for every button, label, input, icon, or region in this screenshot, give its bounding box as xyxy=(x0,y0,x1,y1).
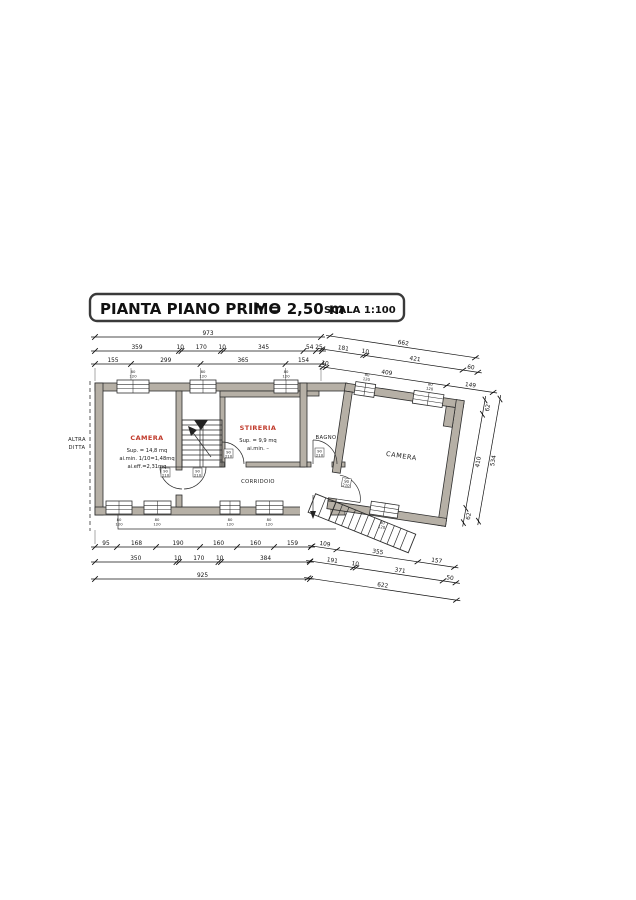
room-camera-1-ai-min: ai.min. 1/10=1,48mq xyxy=(119,456,174,462)
dim-label: 410 xyxy=(475,456,483,468)
svg-text:120: 120 xyxy=(129,374,137,379)
room-stireria: STIRERIA Sup. = 9,9 mq ai.min. – xyxy=(239,424,276,452)
window-symbol xyxy=(220,501,240,514)
dim-label: 155 xyxy=(107,358,118,364)
internal-staircase xyxy=(182,420,222,467)
dim-chain-bottom-total: 925 xyxy=(91,573,314,582)
window-symbol xyxy=(106,501,132,514)
door-swing: 90 210 xyxy=(336,475,363,502)
dim-label: 365 xyxy=(237,358,248,364)
stair-arrow-head xyxy=(188,426,197,436)
room-camera-1-ai-eff: ai.eff.=2,31mq xyxy=(128,464,167,470)
dim-label: 62 xyxy=(466,512,473,521)
dim-label: 62 xyxy=(485,404,492,413)
room-label-stireria: STIRERIA xyxy=(240,424,277,432)
room-label-bagno: BAGNO xyxy=(316,435,337,441)
dim-label: 60 xyxy=(467,364,475,371)
dim-label: 160 xyxy=(250,541,261,547)
dim-chain-bottom-row1: 95168190160160159 xyxy=(91,541,315,550)
svg-text:120: 120 xyxy=(153,522,161,527)
dim-label: 299 xyxy=(160,358,171,364)
dim-label: 534 xyxy=(490,455,498,467)
svg-text:210: 210 xyxy=(342,482,350,488)
window-symbol xyxy=(412,390,444,407)
room-label-corridoio: CORRIDOIO xyxy=(241,479,275,485)
dim-label: 973 xyxy=(202,331,213,337)
floor-plan-drawing: PIANTA PIANO PRIMO h = 2,50 m SCALA 1:10… xyxy=(0,0,636,900)
dim-label: 54 xyxy=(306,345,314,351)
property-line: ALTRA DITTA xyxy=(68,381,90,531)
svg-text:120: 120 xyxy=(199,374,207,379)
dim-chain-top-slope-total: 662 xyxy=(326,329,481,361)
dim-label: 10 xyxy=(351,561,359,568)
room-stireria-ai-min: ai.min. – xyxy=(247,446,269,452)
door-swing: 90 210 xyxy=(184,467,206,489)
dim-chain-top-row3: 155299365154 xyxy=(91,358,326,367)
dim-label: 384 xyxy=(260,556,271,562)
room-camera-1: CAMERA Sup. = 14,8 mq ai.min. 1/10=1,48m… xyxy=(119,434,174,470)
floor-plan-page: PIANTA PIANO PRIMO h = 2,50 m SCALA 1:10… xyxy=(0,0,636,900)
altra-ditta-label: DITTA xyxy=(69,445,86,451)
svg-text:120: 120 xyxy=(265,522,273,527)
dim-label: 10 xyxy=(321,361,329,368)
door-swing: 90 210 xyxy=(313,440,337,464)
dim-chain-top-row2: 35910170103455425 xyxy=(91,345,326,354)
window-symbol xyxy=(256,501,283,514)
svg-text:210: 210 xyxy=(162,473,170,478)
window-symbol xyxy=(117,380,149,393)
dim-chain-bottom-slope-total: 622 xyxy=(304,571,462,603)
dim-chain-top-slope-row2: 1811042160 xyxy=(318,342,483,375)
room-stireria-area: Sup. = 9,9 mq xyxy=(239,438,276,444)
svg-text:120: 120 xyxy=(226,522,234,527)
svg-text:120: 120 xyxy=(362,376,370,382)
dim-chain-bottom-slope-row1: 109355157 xyxy=(308,539,460,570)
dim-label: 170 xyxy=(193,556,204,562)
svg-text:210: 210 xyxy=(194,473,202,478)
dim-label: 95 xyxy=(102,541,110,547)
window-symbol xyxy=(274,380,298,393)
dim-label: 154 xyxy=(298,358,309,364)
svg-text:120: 120 xyxy=(115,522,123,527)
window-symbol xyxy=(354,382,376,398)
title-box: PIANTA PIANO PRIMO h = 2,50 m SCALA 1:10… xyxy=(90,294,404,321)
dim-chain-top-total: 973 xyxy=(91,331,325,340)
dim-label: 350 xyxy=(130,556,141,562)
altra-ditta-label: ALTRA xyxy=(68,437,86,443)
dim-label: 50 xyxy=(446,575,454,582)
svg-text:120: 120 xyxy=(426,386,434,392)
dim-label: 345 xyxy=(258,345,269,351)
room-label-camera-2: CAMERA xyxy=(385,450,417,462)
window-symbol xyxy=(190,380,216,393)
dim-label: 25 xyxy=(315,345,323,351)
dim-label: 160 xyxy=(213,541,224,547)
window-symbol xyxy=(144,501,171,514)
svg-text:210: 210 xyxy=(316,453,324,458)
dim-label: 159 xyxy=(287,541,298,547)
room-camera-1-area: Sup. = 14,8 mq xyxy=(127,448,168,454)
svg-text:210: 210 xyxy=(225,454,233,459)
dim-label: 10 xyxy=(361,349,369,356)
room-label-camera-1: CAMERA xyxy=(130,434,163,442)
dim-label: 168 xyxy=(131,541,142,547)
scale-note: SCALA 1:100 xyxy=(324,305,396,316)
dim-label: 190 xyxy=(172,541,183,547)
dim-chain-bottom-row2: 3501017010384 xyxy=(91,556,314,565)
dim-label: 359 xyxy=(131,345,142,351)
dim-chain-right-side-inner: 6241062 xyxy=(460,396,493,528)
dim-label: 170 xyxy=(196,345,207,351)
dim-label: 925 xyxy=(197,573,208,579)
svg-text:120: 120 xyxy=(282,374,290,379)
